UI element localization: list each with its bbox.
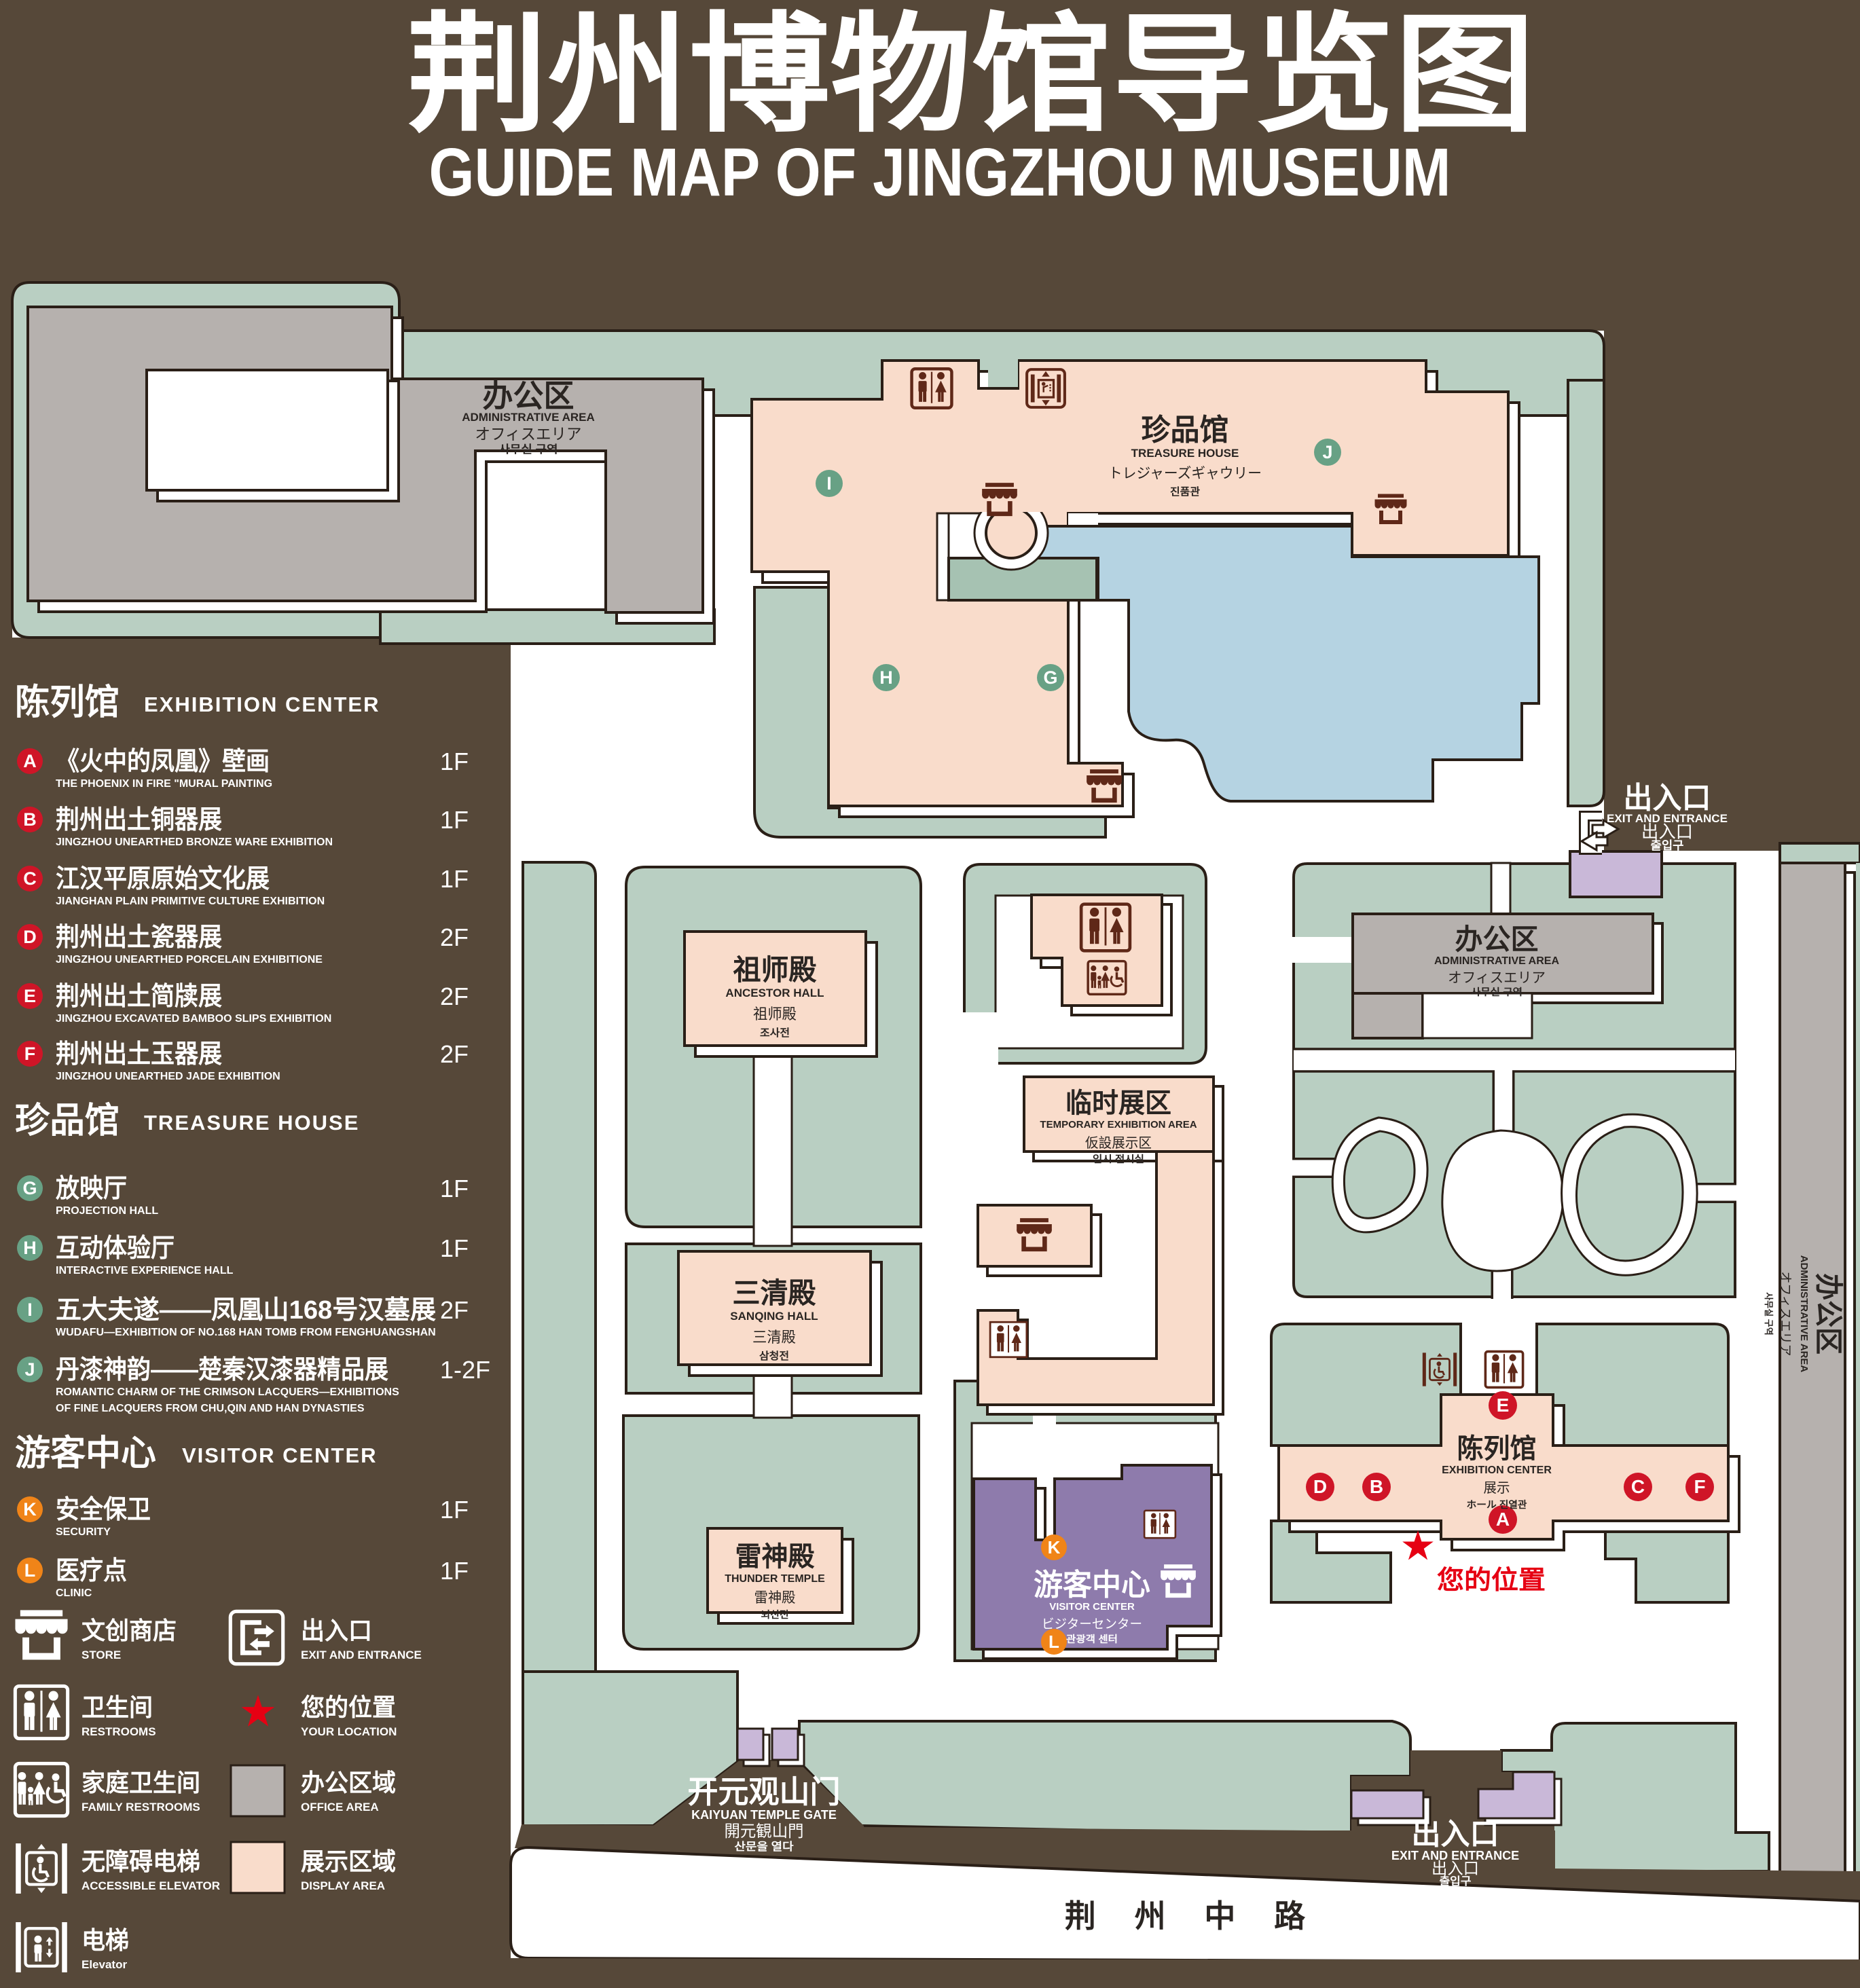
svg-text:출입구: 출입구 — [1440, 1875, 1472, 1888]
svg-text:CLINIC: CLINIC — [56, 1587, 92, 1599]
svg-text:雷神殿: 雷神殿 — [735, 1542, 815, 1572]
svg-text:荆州出土铜器展: 荆州出土铜器展 — [56, 806, 222, 834]
svg-text:PROJECTION HALL: PROJECTION HALL — [56, 1205, 158, 1217]
svg-text:《火中的凤凰》壁画: 《火中的凤凰》壁画 — [56, 748, 270, 776]
svg-text:陈列馆: 陈列馆 — [1457, 1434, 1537, 1464]
svg-text:2F: 2F — [440, 923, 469, 951]
svg-text:H: H — [879, 667, 893, 688]
svg-text:사무실 구역: 사무실 구역 — [1471, 987, 1522, 997]
svg-text:EXIT AND ENTRANCE: EXIT AND ENTRANCE — [301, 1649, 422, 1661]
svg-text:珍品馆: 珍品馆 — [1142, 413, 1229, 447]
svg-text:出入口: 出入口 — [301, 1617, 372, 1644]
svg-text:トレジャーズギャウリー: トレジャーズギャウリー — [1108, 466, 1262, 481]
svg-text:开元观山门: 开元观山门 — [688, 1774, 841, 1809]
svg-text:SANQING HALL: SANQING HALL — [730, 1310, 818, 1323]
svg-text:임시 전시실: 임시 전시실 — [1093, 1154, 1144, 1164]
svg-text:2F: 2F — [440, 1040, 469, 1068]
svg-text:開元観山門: 開元観山門 — [725, 1822, 804, 1841]
svg-text:办公区: 办公区 — [1455, 923, 1539, 955]
svg-text:游客中心: 游客中心 — [15, 1434, 156, 1473]
svg-text:出入口: 出入口 — [1412, 1818, 1499, 1851]
svg-text:互动体验厅: 互动体验厅 — [56, 1234, 175, 1263]
svg-text:사무실 구역: 사무실 구역 — [1764, 1292, 1774, 1335]
svg-text:办公区: 办公区 — [483, 378, 575, 413]
svg-text:산문을 열다: 산문을 열다 — [735, 1841, 794, 1853]
svg-text:オフィスエリア: オフィスエリア — [1448, 970, 1546, 986]
svg-text:VISITOR CENTER: VISITOR CENTER — [182, 1443, 378, 1467]
svg-text:A: A — [23, 751, 37, 771]
svg-text:1F: 1F — [440, 865, 469, 893]
svg-text:D: D — [23, 927, 37, 947]
svg-text:荆州出土简牍展: 荆州出土简牍展 — [56, 982, 222, 1011]
svg-text:1F: 1F — [440, 806, 469, 834]
svg-text:E: E — [1497, 1395, 1510, 1416]
svg-text:VISITOR CENTER: VISITOR CENTER — [1049, 1601, 1135, 1613]
svg-text:D: D — [1313, 1476, 1327, 1497]
svg-text:SECURITY: SECURITY — [56, 1526, 111, 1538]
svg-text:K: K — [1048, 1537, 1061, 1558]
svg-text:INTERACTIVE EXPERIENCE HALL: INTERACTIVE EXPERIENCE HALL — [56, 1265, 234, 1276]
svg-text:ビジターセンター: ビジターセンター — [1042, 1617, 1142, 1632]
svg-text:H: H — [23, 1238, 37, 1258]
svg-text:ADMINISTRATIVE AREA: ADMINISTRATIVE AREA — [1434, 955, 1559, 967]
svg-text:A: A — [1496, 1509, 1510, 1530]
svg-text:관광객 센터: 관광객 센터 — [1066, 1634, 1118, 1644]
svg-text:JINGZHOU EXCAVATED BAMBOO SLIP: JINGZHOU EXCAVATED BAMBOO SLIPS EXHIBITI… — [56, 1013, 331, 1025]
svg-text:荆 州 中 路: 荆 州 中 路 — [1065, 1898, 1320, 1934]
svg-text:仮設展示区: 仮設展示区 — [1085, 1135, 1152, 1151]
svg-text:展示: 展示 — [1484, 1481, 1510, 1496]
svg-text:祖师殿: 祖师殿 — [753, 1006, 797, 1023]
svg-text:1F: 1F — [440, 1496, 469, 1524]
svg-text:无障碍电梯: 无障碍电梯 — [81, 1847, 200, 1875]
svg-text:江汉平原原始文化展: 江汉平原原始文化展 — [56, 865, 270, 894]
svg-text:사무실 구역: 사무실 구역 — [499, 443, 558, 456]
svg-text:F: F — [1694, 1476, 1705, 1497]
svg-text:GUIDE MAP OF JINGZHOU MUSEUM: GUIDE MAP OF JINGZHOU MUSEUM — [429, 134, 1451, 210]
svg-text:B: B — [1370, 1476, 1383, 1497]
svg-text:JINGZHOU UNEARTHED JADE EXHIBI: JINGZHOU UNEARTHED JADE EXHIBITION — [56, 1071, 280, 1082]
svg-text:FAMILY RESTROOMS: FAMILY RESTROOMS — [81, 1801, 200, 1814]
svg-text:G: G — [22, 1178, 37, 1198]
svg-text:B: B — [23, 809, 37, 830]
svg-text:출입구: 출입구 — [1651, 839, 1684, 852]
svg-text:J: J — [1322, 442, 1332, 462]
svg-text:G: G — [1043, 667, 1057, 688]
svg-text:ホール 진열관: ホール 진열관 — [1467, 1499, 1527, 1510]
svg-text:I: I — [826, 473, 832, 494]
svg-text:STORE: STORE — [81, 1649, 121, 1661]
svg-text:진품관: 진품관 — [1170, 486, 1200, 498]
svg-text:ANCESTOR HALL: ANCESTOR HALL — [725, 987, 824, 999]
svg-text:J: J — [24, 1359, 35, 1380]
svg-text:C: C — [23, 868, 37, 889]
svg-text:뇌신전: 뇌신전 — [761, 1609, 789, 1620]
svg-text:ADMINISTRATIVE AREA: ADMINISTRATIVE AREA — [462, 411, 595, 424]
svg-text:TREASURE HOUSE: TREASURE HOUSE — [144, 1111, 359, 1135]
svg-text:三清殿: 三清殿 — [733, 1277, 816, 1309]
svg-text:祖师殿: 祖师殿 — [733, 954, 817, 986]
svg-text:您的位置: 您的位置 — [1437, 1566, 1546, 1595]
svg-text:OFFICE AREA: OFFICE AREA — [301, 1801, 379, 1814]
svg-text:L: L — [1048, 1632, 1059, 1652]
svg-text:家庭卫生间: 家庭卫生间 — [81, 1769, 200, 1797]
svg-text:I: I — [27, 1300, 33, 1320]
svg-text:电梯: 电梯 — [81, 1926, 129, 1954]
svg-text:JIANGHAN PLAIN PRIMITIVE CULTU: JIANGHAN PLAIN PRIMITIVE CULTURE EXHIBIT… — [56, 896, 325, 907]
svg-text:展示区域: 展示区域 — [301, 1847, 396, 1875]
svg-text:OF FINE LACQUERS FROM CHU,QIN: OF FINE LACQUERS FROM CHU,QIN AND HAN DY… — [56, 1403, 365, 1414]
svg-text:TEMPORARY EXHIBITION AREA: TEMPORARY EXHIBITION AREA — [1040, 1119, 1197, 1130]
svg-text:K: K — [23, 1499, 37, 1520]
svg-text:F: F — [24, 1044, 36, 1064]
svg-text:出入口: 出入口 — [1432, 1860, 1479, 1878]
svg-text:JINGZHOU UNEARTHED BRONZE WARE: JINGZHOU UNEARTHED BRONZE WARE EXHIBITIO… — [56, 836, 333, 848]
svg-text:KAIYUAN TEMPLE GATE: KAIYUAN TEMPLE GATE — [691, 1808, 837, 1822]
svg-text:THUNDER TEMPLE: THUNDER TEMPLE — [725, 1573, 825, 1585]
svg-text:您的位置: 您的位置 — [301, 1693, 396, 1721]
svg-text:医疗点: 医疗点 — [56, 1557, 127, 1585]
svg-text:ADMINISTRATIVE AREA: ADMINISTRATIVE AREA — [1798, 1255, 1810, 1373]
svg-text:オフィスエリア: オフィスエリア — [1778, 1272, 1792, 1357]
svg-text:1F: 1F — [440, 1234, 469, 1262]
svg-text:RESTROOMS: RESTROOMS — [81, 1725, 156, 1738]
svg-text:オフィスエリア: オフィスエリア — [475, 425, 582, 443]
svg-text:DISPLAY AREA: DISPLAY AREA — [301, 1879, 385, 1892]
svg-text:五大夫遂——凤凰山168号汉墓展: 五大夫遂——凤凰山168号汉墓展 — [56, 1296, 436, 1325]
svg-text:临时展区: 临时展区 — [1065, 1088, 1171, 1118]
svg-text:雷神殿: 雷神殿 — [754, 1590, 796, 1606]
svg-text:荆州博物馆导览图: 荆州博物馆导览图 — [407, 3, 1535, 147]
svg-text:放映厅: 放映厅 — [56, 1175, 127, 1203]
svg-text:1F: 1F — [440, 1175, 469, 1202]
svg-text:ACCESSIBLE ELEVATOR: ACCESSIBLE ELEVATOR — [81, 1879, 220, 1892]
svg-text:1F: 1F — [440, 748, 469, 775]
svg-text:文创商店: 文创商店 — [81, 1617, 177, 1644]
svg-text:YOUR LOCATION: YOUR LOCATION — [301, 1725, 397, 1738]
svg-text:游客中心: 游客中心 — [1034, 1568, 1150, 1602]
svg-text:Elevator: Elevator — [81, 1958, 127, 1971]
svg-text:办公区域: 办公区域 — [301, 1769, 396, 1797]
svg-text:E: E — [24, 986, 36, 1006]
svg-text:TREASURE HOUSE: TREASURE HOUSE — [1131, 447, 1239, 460]
svg-text:卫生间: 卫生间 — [81, 1693, 153, 1721]
svg-text:珍品馆: 珍品馆 — [15, 1101, 120, 1141]
svg-text:荆州出土玉器展: 荆州出土玉器展 — [56, 1040, 222, 1069]
svg-text:JINGZHOU UNEARTHED PORCELAIN E: JINGZHOU UNEARTHED PORCELAIN EXHIBITIONE — [56, 954, 323, 965]
svg-text:EXHIBITION CENTER: EXHIBITION CENTER — [144, 693, 380, 716]
svg-text:丹漆神韵——楚秦汉漆器精品展: 丹漆神韵——楚秦汉漆器精品展 — [56, 1356, 388, 1384]
svg-text:1F: 1F — [440, 1557, 469, 1585]
svg-text:THE PHOENIX IN FIRE "MURAL PAI: THE PHOENIX IN FIRE "MURAL PAINTING — [56, 778, 272, 790]
svg-text:1-2F: 1-2F — [440, 1356, 490, 1384]
svg-text:L: L — [24, 1560, 36, 1581]
svg-text:荆州出土瓷器展: 荆州出土瓷器展 — [56, 923, 222, 952]
svg-text:WUDAFU—EXHIBITION OF NO.168 HA: WUDAFU—EXHIBITION OF NO.168 HAN TOMB FRO… — [56, 1327, 436, 1338]
svg-text:安全保卫: 安全保卫 — [56, 1495, 151, 1524]
svg-text:陈列馆: 陈列馆 — [15, 683, 120, 722]
svg-text:出入口: 出入口 — [1624, 781, 1711, 815]
svg-text:C: C — [1631, 1476, 1645, 1497]
svg-text:EXHIBITION CENTER: EXHIBITION CENTER — [1442, 1465, 1552, 1476]
svg-text:2F: 2F — [440, 1296, 469, 1324]
svg-text:三清殿: 三清殿 — [752, 1329, 796, 1346]
svg-text:ROMANTIC CHARM OF THE CRIMSON: ROMANTIC CHARM OF THE CRIMSON LACQUERS—E… — [56, 1386, 399, 1398]
svg-text:조사전: 조사전 — [760, 1027, 790, 1039]
svg-text:2F: 2F — [440, 982, 469, 1010]
svg-text:办公区: 办公区 — [1812, 1273, 1844, 1355]
svg-text:삼청전: 삼청전 — [759, 1350, 789, 1362]
